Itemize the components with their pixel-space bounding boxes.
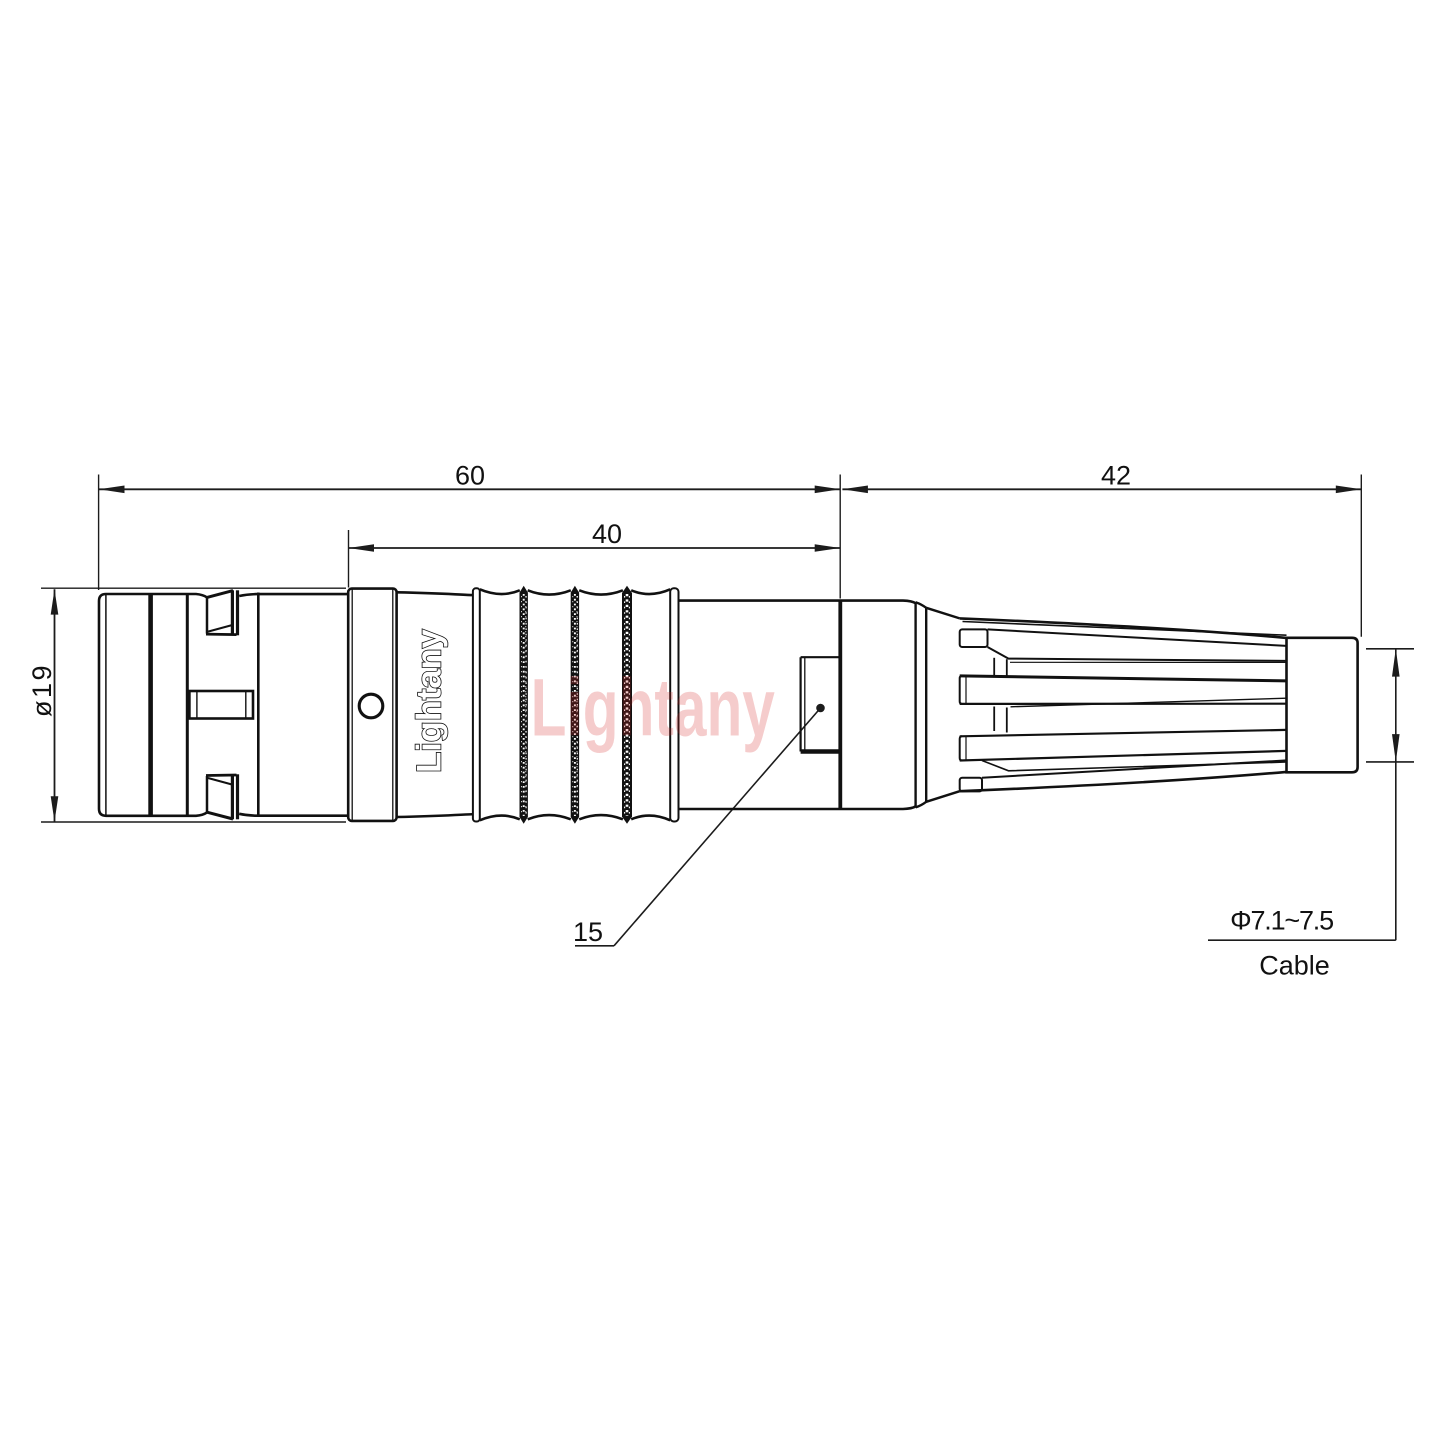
svg-text:Lightany: Lightany — [531, 662, 776, 754]
